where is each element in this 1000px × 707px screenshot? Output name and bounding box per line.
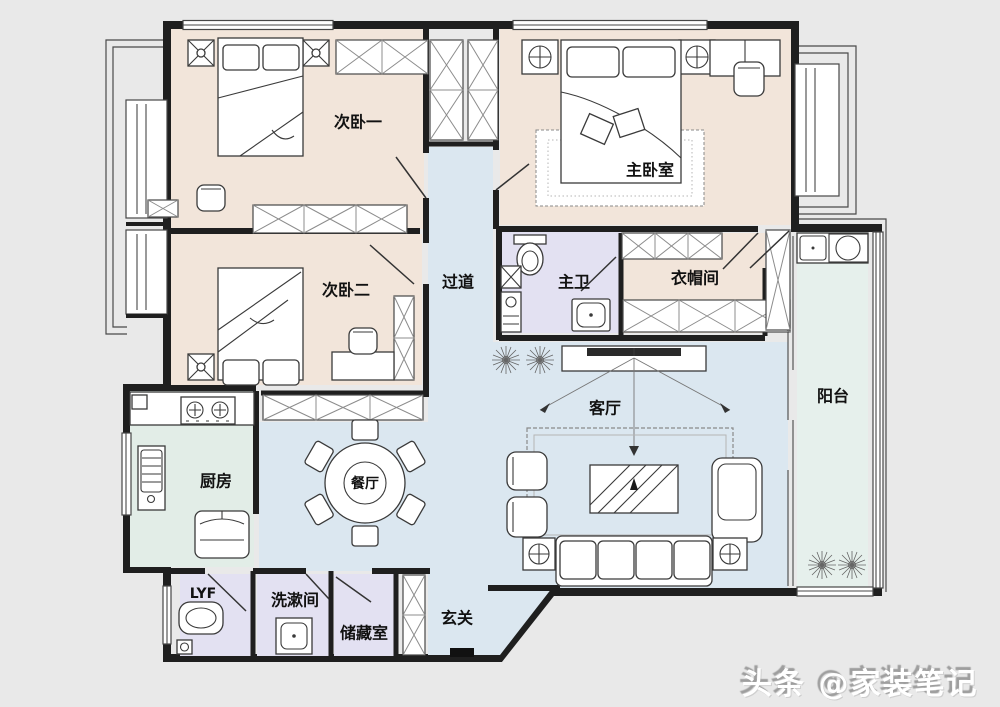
label-balcony: 阳台 [817,387,849,406]
armchair-icon [507,452,547,490]
shower-tray-icon [572,299,610,331]
shoe-cabinet-entry [403,575,425,655]
bay-window-left-2 [126,230,167,314]
cabinet-bay-divider [148,200,178,217]
plant-icon [526,346,554,374]
floor-drain-icon [177,640,192,654]
nightstand-icon [188,354,214,380]
dining-chair-icon [352,526,378,546]
chair-icon [734,62,764,96]
sofa-icon [556,536,712,586]
chaise-icon [712,458,762,542]
window-bedroom1-top [183,21,333,30]
entry-doormat [450,648,474,657]
bed-icon [218,268,303,385]
floor-plan-stage: 次卧一 主卧室 次卧二 过道 主卫 衣帽间 阳台 客厅 餐厅 厨房 LYF 洗漱… [0,0,1000,707]
window-kitchen-left [122,433,131,515]
fridge-icon [195,511,249,558]
closet-cloakroom-bottom [623,300,790,332]
window-balcony-right [873,232,883,588]
nightstand-icon [303,40,329,66]
label-lyf: LYF [190,586,216,602]
stool-icon [197,185,225,211]
window-master-top [513,21,707,30]
cabinet-dining-top [263,395,423,420]
wardrobe-bedroom2 [394,296,414,380]
washroom-fixtures [276,618,312,654]
side-table-icon [713,538,747,570]
bay-window-master [795,64,839,196]
kitchen-corner-box [132,395,147,409]
stove-icon [181,397,235,424]
label-dining-room: 餐厅 [350,475,379,492]
window-lyf-left [163,586,171,644]
cabinet-niche-right [468,40,498,140]
bath-cabinet-icon [501,266,521,332]
label-living-room: 客厅 [589,399,621,418]
dining-chair-icon [352,420,378,440]
room-floor-storage [334,574,394,656]
cabinet-corridor [766,230,790,330]
room-floor-balcony [797,232,868,588]
armchair-icon [507,497,547,537]
bed-icon [218,38,303,156]
wardrobe-bedroom1-top [336,40,428,74]
plant-icon [838,551,866,579]
cabinet-niche-left [430,40,463,140]
closet-cloakroom-top [622,233,722,259]
side-table-icon [523,538,555,570]
bathtub-icon [179,602,223,634]
closet-bedroom1-bottom [253,205,407,233]
nightstand-icon [188,40,214,66]
plant-icon [492,346,520,374]
coffee-table-icon [590,465,678,513]
balcony-counter [797,233,868,263]
label-master-bath: 主卫 [558,273,590,292]
label-washroom: 洗漱间 [271,591,319,610]
chair-icon [349,328,377,354]
floor-plan-svg: 次卧一 主卧室 次卧二 过道 主卫 衣帽间 阳台 客厅 餐厅 厨房 LYF 洗漱… [0,0,1000,707]
plant-icon [808,551,836,579]
label-kitchen: 厨房 [200,472,232,491]
wash-basin-icon [276,618,312,654]
label-storage: 储藏室 [339,624,388,643]
window-balcony-bottom [797,587,873,596]
label-entry: 玄关 [441,609,473,628]
sink-icon [138,446,165,510]
nightstand-lamp-icon [522,40,558,74]
watermark: 头条 @家装笔记 [742,659,992,703]
desk-icon [332,352,394,380]
label-bedroom1: 次卧一 [334,113,382,132]
label-cloakroom: 衣帽间 [671,269,719,288]
label-bedroom2: 次卧二 [322,281,370,300]
label-hallway: 过道 [442,273,474,292]
label-master-bedroom: 主卧室 [626,161,674,180]
